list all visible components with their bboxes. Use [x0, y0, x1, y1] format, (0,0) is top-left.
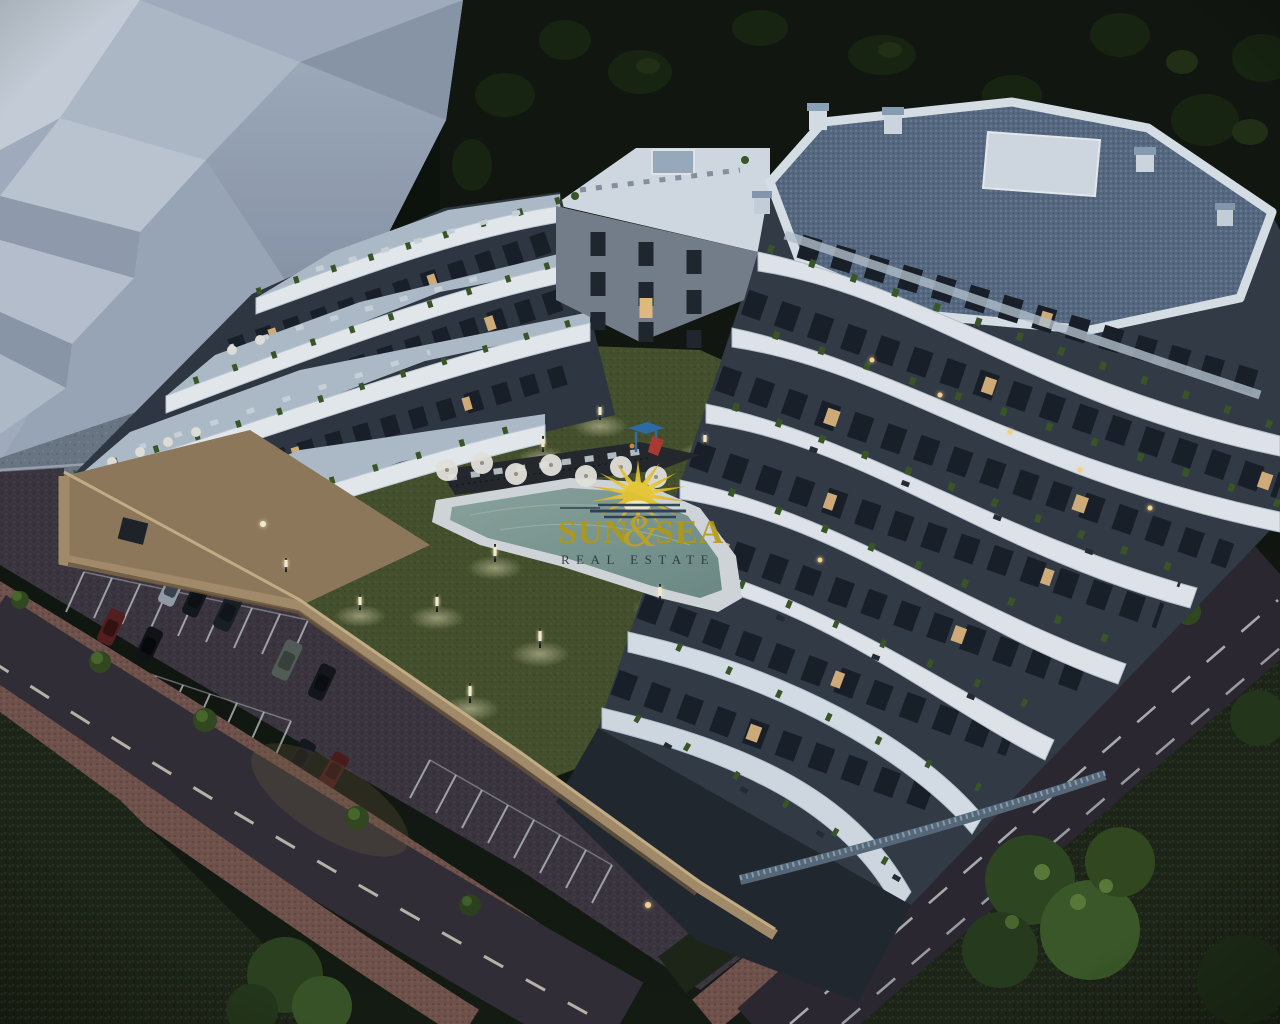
architectural-render-image: SUN & SEA REAL ESTATE: [0, 0, 1280, 1024]
logo-text-real-estate: REAL ESTATE: [561, 552, 715, 567]
logo-text-sun: SUN: [558, 514, 629, 551]
logo-ampersand: &: [622, 505, 658, 556]
render-stage: SUN & SEA REAL ESTATE: [0, 0, 1280, 1024]
logo-text-sea: SEA: [655, 514, 724, 551]
